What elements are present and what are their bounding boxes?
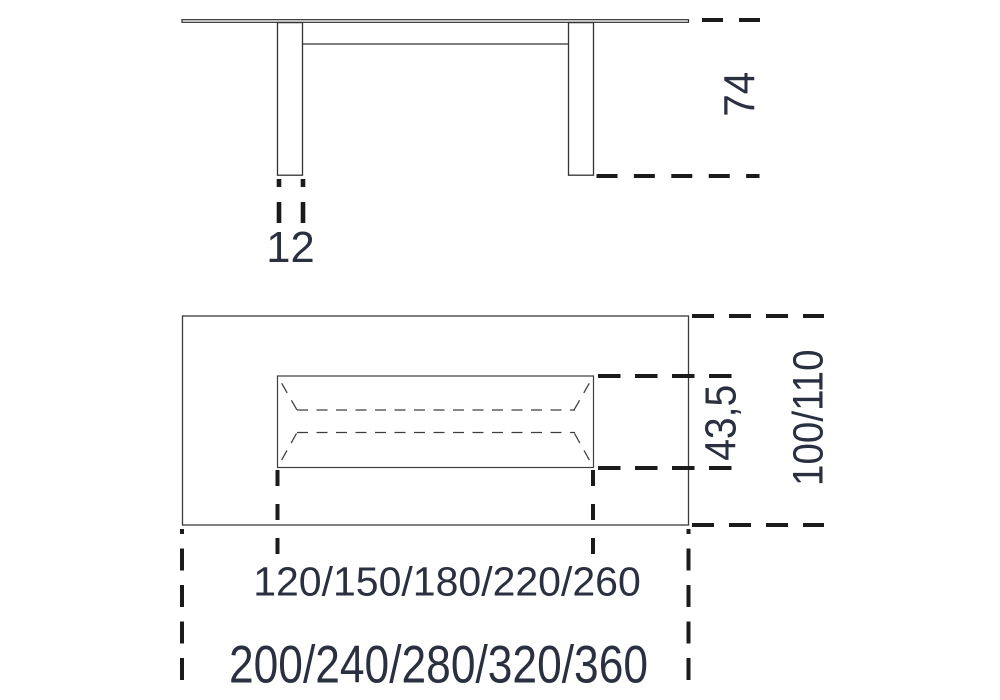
svg-text:200/240/280/320/360: 200/240/280/320/360 xyxy=(229,636,648,695)
svg-text:74: 74 xyxy=(715,72,764,117)
svg-text:43,5: 43,5 xyxy=(697,385,745,461)
svg-text:120/150/180/220/260: 120/150/180/220/260 xyxy=(253,559,641,605)
svg-text:12: 12 xyxy=(266,224,314,272)
svg-text:100/110: 100/110 xyxy=(784,349,832,486)
